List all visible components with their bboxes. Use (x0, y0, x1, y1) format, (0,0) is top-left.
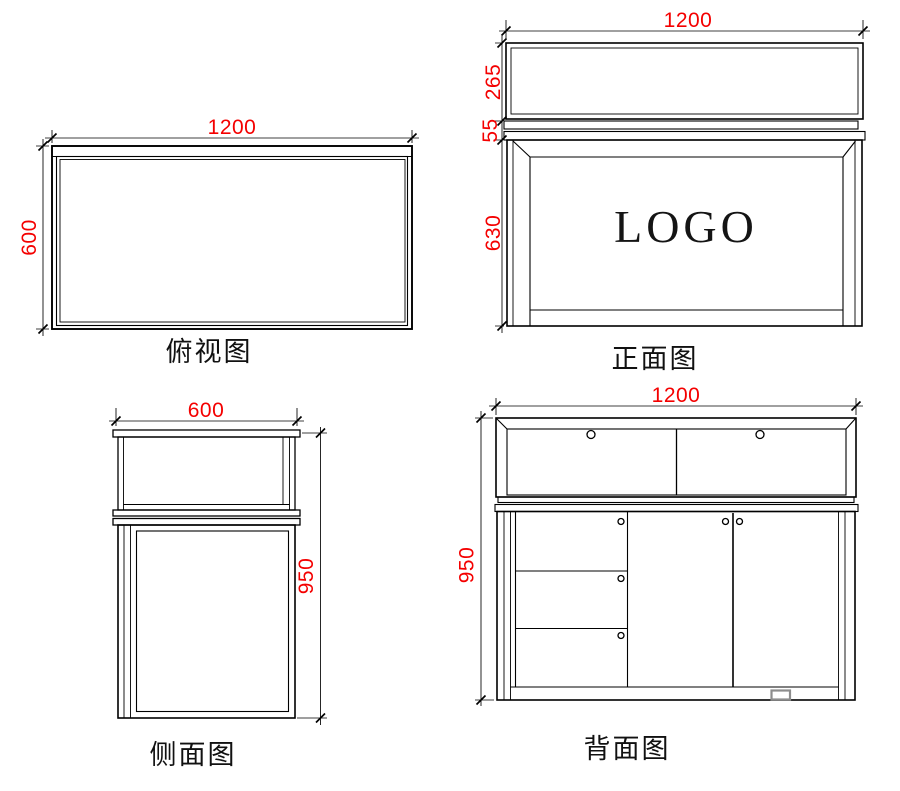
front-view-label: 正面图 (612, 344, 699, 374)
back-door-right-knob-icon (737, 519, 743, 525)
front-cabinet-corner-bevels (513, 141, 856, 157)
side-cabinet-edge-lines (124, 525, 131, 718)
top-view-outer-outline (52, 146, 412, 329)
side-cabinet-panel (137, 531, 289, 712)
side-glass-pane-lines (124, 437, 290, 505)
back-counter-strip-lower (495, 505, 858, 512)
front-logo-text: LOGO (614, 201, 758, 252)
front-counter-strip-upper (504, 121, 858, 129)
back-sliding-door-left-lock-icon (587, 431, 595, 439)
back-counter-strip-upper (498, 497, 854, 503)
back-view-label: 背面图 (584, 734, 671, 764)
back-width-dimension-value: 1200 (652, 384, 701, 407)
side-glass-case-outline (118, 437, 295, 510)
technical-drawing-canvas: 1200 600 俯视图 LOGO 1200 265 55 630 正面图 (0, 0, 900, 791)
front-counter-height-dimension-value: 55 (479, 118, 502, 142)
side-cabinet-outline (118, 525, 295, 718)
back-glass-corner-bevels (497, 419, 856, 430)
back-drawer-2-knob-icon (618, 576, 624, 582)
side-view-label: 侧面图 (150, 740, 237, 770)
front-glass-case-outline (506, 43, 863, 119)
back-view: 1200 950 背面图 (456, 384, 864, 764)
side-depth-dimension-value: 600 (188, 399, 225, 422)
side-glass-frame-lines (124, 437, 290, 510)
front-view: LOGO 1200 265 55 630 正面图 (479, 9, 870, 374)
side-counter-strip-upper (113, 510, 300, 516)
back-sliding-door-right-lock-icon (756, 431, 764, 439)
front-cabinet-height-dimension-value: 630 (482, 215, 505, 252)
back-drawer-3-knob-icon (618, 633, 624, 639)
back-drawer-1-knob-icon (618, 519, 624, 525)
back-cabinet-right-panel-lines (839, 512, 846, 701)
top-view-glass-edge (60, 160, 405, 323)
back-door-left-knob-icon (723, 519, 729, 525)
front-width-dimension-value: 1200 (664, 9, 713, 32)
top-view-depth-dimension-value: 600 (18, 219, 41, 256)
front-counter-strip-lower (504, 132, 865, 141)
front-glass-height-dimension-value: 265 (482, 64, 505, 101)
drawing-svg: 1200 600 俯视图 LOGO 1200 265 55 630 正面图 (0, 0, 900, 791)
top-view-inner-frame (57, 157, 408, 326)
side-view: 600 950 侧面图 (109, 399, 327, 770)
back-drawer-stack-outlines (516, 512, 628, 688)
top-view-label: 俯视图 (166, 337, 253, 367)
top-view: 1200 600 俯视图 (18, 116, 419, 367)
top-view-width-dimension-value: 1200 (208, 116, 257, 139)
back-cable-outlet-icon (772, 691, 791, 700)
front-glass-case-inner (511, 48, 858, 114)
back-cabinet-outline (497, 512, 855, 701)
back-cabinet-left-panel-lines (504, 512, 511, 701)
back-height-dimension-value: 950 (456, 547, 479, 584)
side-height-dimension-value: 950 (295, 558, 318, 595)
side-top-cap (113, 430, 300, 437)
side-counter-strip-lower (113, 519, 300, 526)
